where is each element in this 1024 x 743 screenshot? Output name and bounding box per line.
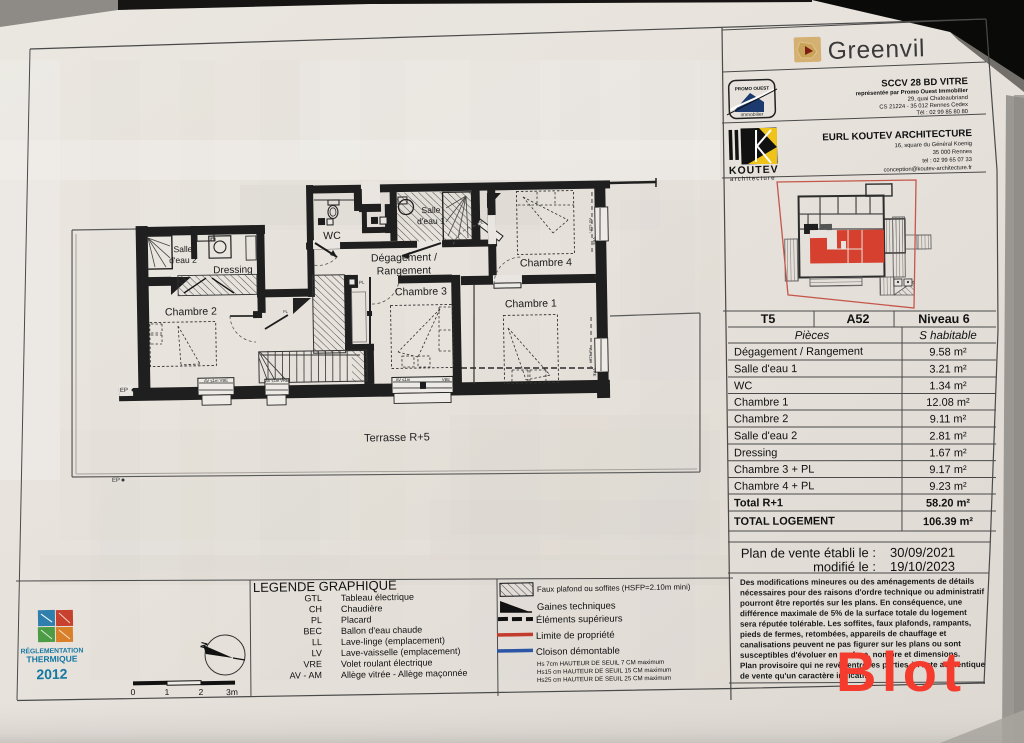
svg-text:BEC: BEC: [303, 626, 322, 636]
svg-text:THERMIQUE: THERMIQUE: [26, 654, 77, 665]
svg-text:EP: EP: [120, 388, 128, 394]
svg-text:Pièces: Pièces: [795, 330, 830, 342]
svg-text:Volet roulant électrique: Volet roulant électrique: [341, 657, 433, 669]
svg-text:AV ≤1m VBE: AV ≤1m VBE: [204, 378, 228, 383]
svg-text:Chambre 1: Chambre 1: [734, 396, 788, 408]
svg-text:Salle: Salle: [173, 244, 192, 254]
svg-text:19/10/2023: 19/10/2023: [890, 559, 955, 574]
svg-text:PL: PL: [478, 220, 484, 225]
svg-text:PROMO OUEST: PROMO OUEST: [735, 85, 770, 91]
svg-text:Ballon d'eau chaude: Ballon d'eau chaude: [341, 625, 422, 636]
svg-text:CH: CH: [309, 604, 322, 614]
svg-text:1: 1: [165, 687, 170, 697]
svg-text:Cloison démontable: Cloison démontable: [536, 646, 620, 658]
svg-text:d'eau 1: d'eau 1: [417, 216, 445, 226]
svg-text:Terrasse R+5: Terrasse R+5: [364, 431, 430, 444]
svg-text:PL: PL: [359, 280, 365, 285]
svg-text:3m: 3m: [226, 687, 238, 697]
svg-text:AV ≤1m: AV ≤1m: [588, 218, 593, 233]
svg-text:1.34 m²: 1.34 m²: [929, 380, 967, 392]
svg-text:différence maximale de 5% de l: différence maximale de 5% de la surface …: [740, 608, 967, 618]
svg-text:Salle d'eau 2: Salle d'eau 2: [734, 430, 797, 442]
svg-text:PL: PL: [311, 615, 322, 625]
svg-text:sera réputée tolérable. Les so: sera réputée tolérable. Les soffites, fa…: [740, 618, 971, 628]
svg-text:WC: WC: [323, 230, 341, 242]
svg-text:Lave-linge (emplacement): Lave-linge (emplacement): [341, 635, 445, 647]
svg-text:9.23 m²: 9.23 m²: [929, 481, 967, 493]
svg-text:A52: A52: [846, 312, 869, 326]
svg-text:Éléments supérieurs: Éléments supérieurs: [536, 613, 623, 626]
svg-text:3.21 m²: 3.21 m²: [929, 363, 967, 375]
svg-text:Salle: Salle: [421, 205, 440, 215]
svg-text:2012: 2012: [36, 666, 68, 683]
svg-text:Des modifications mineures ou: Des modifications mineures ou des aménag…: [740, 577, 975, 587]
svg-text:S habitable: S habitable: [919, 330, 977, 342]
svg-text:30/09/2021: 30/09/2021: [890, 545, 955, 560]
svg-text:LV: LV: [311, 648, 322, 658]
svg-text:Chambre 4: Chambre 4: [520, 257, 572, 270]
svg-text:pieds de fermes, retombées, ap: pieds de fermes, retombées, appareils de…: [740, 629, 947, 639]
svg-text:Chambre 1: Chambre 1: [505, 298, 557, 311]
svg-text:Gaines techniques: Gaines techniques: [537, 601, 616, 613]
svg-text:VBE: VBE: [592, 237, 597, 246]
svg-text:AV ≤1m: AV ≤1m: [396, 377, 411, 382]
svg-text:Salle d'eau 1: Salle d'eau 1: [734, 363, 797, 375]
svg-text:Tableau électrique: Tableau électrique: [341, 592, 414, 603]
svg-text:Dégagement /: Dégagement /: [371, 251, 437, 264]
svg-text:Limite de propriété: Limite de propriété: [536, 630, 615, 642]
svg-text:VRE: VRE: [303, 659, 322, 669]
svg-text:Lave-vaisselle (emplacement): Lave-vaisselle (emplacement): [341, 646, 461, 658]
svg-text:Placard: Placard: [341, 614, 372, 625]
svg-text:Niveau 6: Niveau 6: [918, 312, 970, 326]
svg-text:AV - AM: AV - AM: [289, 670, 322, 681]
svg-text:Chaudière: Chaudière: [341, 603, 383, 614]
svg-text:VBE: VBE: [442, 377, 451, 382]
svg-text:106.39 m²: 106.39 m²: [923, 516, 974, 528]
svg-text:GTL: GTL: [304, 593, 322, 603]
svg-text:LL: LL: [312, 637, 322, 647]
svg-text:TOTAL LOGEMENT: TOTAL LOGEMENT: [734, 515, 835, 528]
svg-text:modifié le :: modifié le :: [813, 559, 876, 574]
svg-text:pourront être reportés sur les: pourront être reportés sur les plans. En…: [740, 598, 963, 608]
svg-text:Dégagement / Rangement: Dégagement / Rangement: [734, 346, 863, 359]
svg-text:Chambre 4 + PL: Chambre 4 + PL: [734, 480, 814, 492]
svg-text:9.11 m²: 9.11 m²: [930, 413, 967, 425]
svg-text:immobilier: immobilier: [741, 112, 764, 119]
svg-text:12.08 m²: 12.08 m²: [926, 397, 970, 409]
svg-text:1.67 m²: 1.67 m²: [929, 447, 967, 459]
svg-text:PL: PL: [283, 309, 289, 314]
svg-text:nécessaires pour des raisons d: nécessaires pour des raisons d'ordre tec…: [740, 587, 985, 597]
svg-text:9.58 m²: 9.58 m²: [929, 346, 967, 358]
svg-text:35 000 Rennes: 35 000 Rennes: [933, 149, 973, 156]
svg-text:VRE: VRE: [592, 368, 597, 377]
svg-text:EP: EP: [112, 478, 120, 484]
svg-text:Chambre 2: Chambre 2: [734, 413, 788, 425]
svg-text:Dressing: Dressing: [734, 447, 777, 459]
svg-text:9.17 m²: 9.17 m²: [929, 464, 967, 476]
svg-text:WC: WC: [734, 380, 752, 392]
svg-text:2.81 m²: 2.81 m²: [929, 430, 967, 442]
svg-text:0: 0: [131, 687, 136, 697]
svg-text:58.20 m²: 58.20 m²: [926, 497, 970, 509]
svg-text:Chambre 3 + PL: Chambre 3 + PL: [734, 464, 814, 476]
svg-text:Chambre 2: Chambre 2: [165, 306, 217, 319]
svg-text:2: 2: [199, 687, 204, 697]
svg-text:AV ≤1m VRE: AV ≤1m VRE: [265, 378, 289, 383]
svg-text:Greenvil: Greenvil: [827, 35, 925, 65]
svg-text:Total R+1: Total R+1: [734, 497, 783, 509]
svg-text:Chambre 3: Chambre 3: [395, 286, 447, 299]
svg-text:T5: T5: [761, 312, 776, 326]
